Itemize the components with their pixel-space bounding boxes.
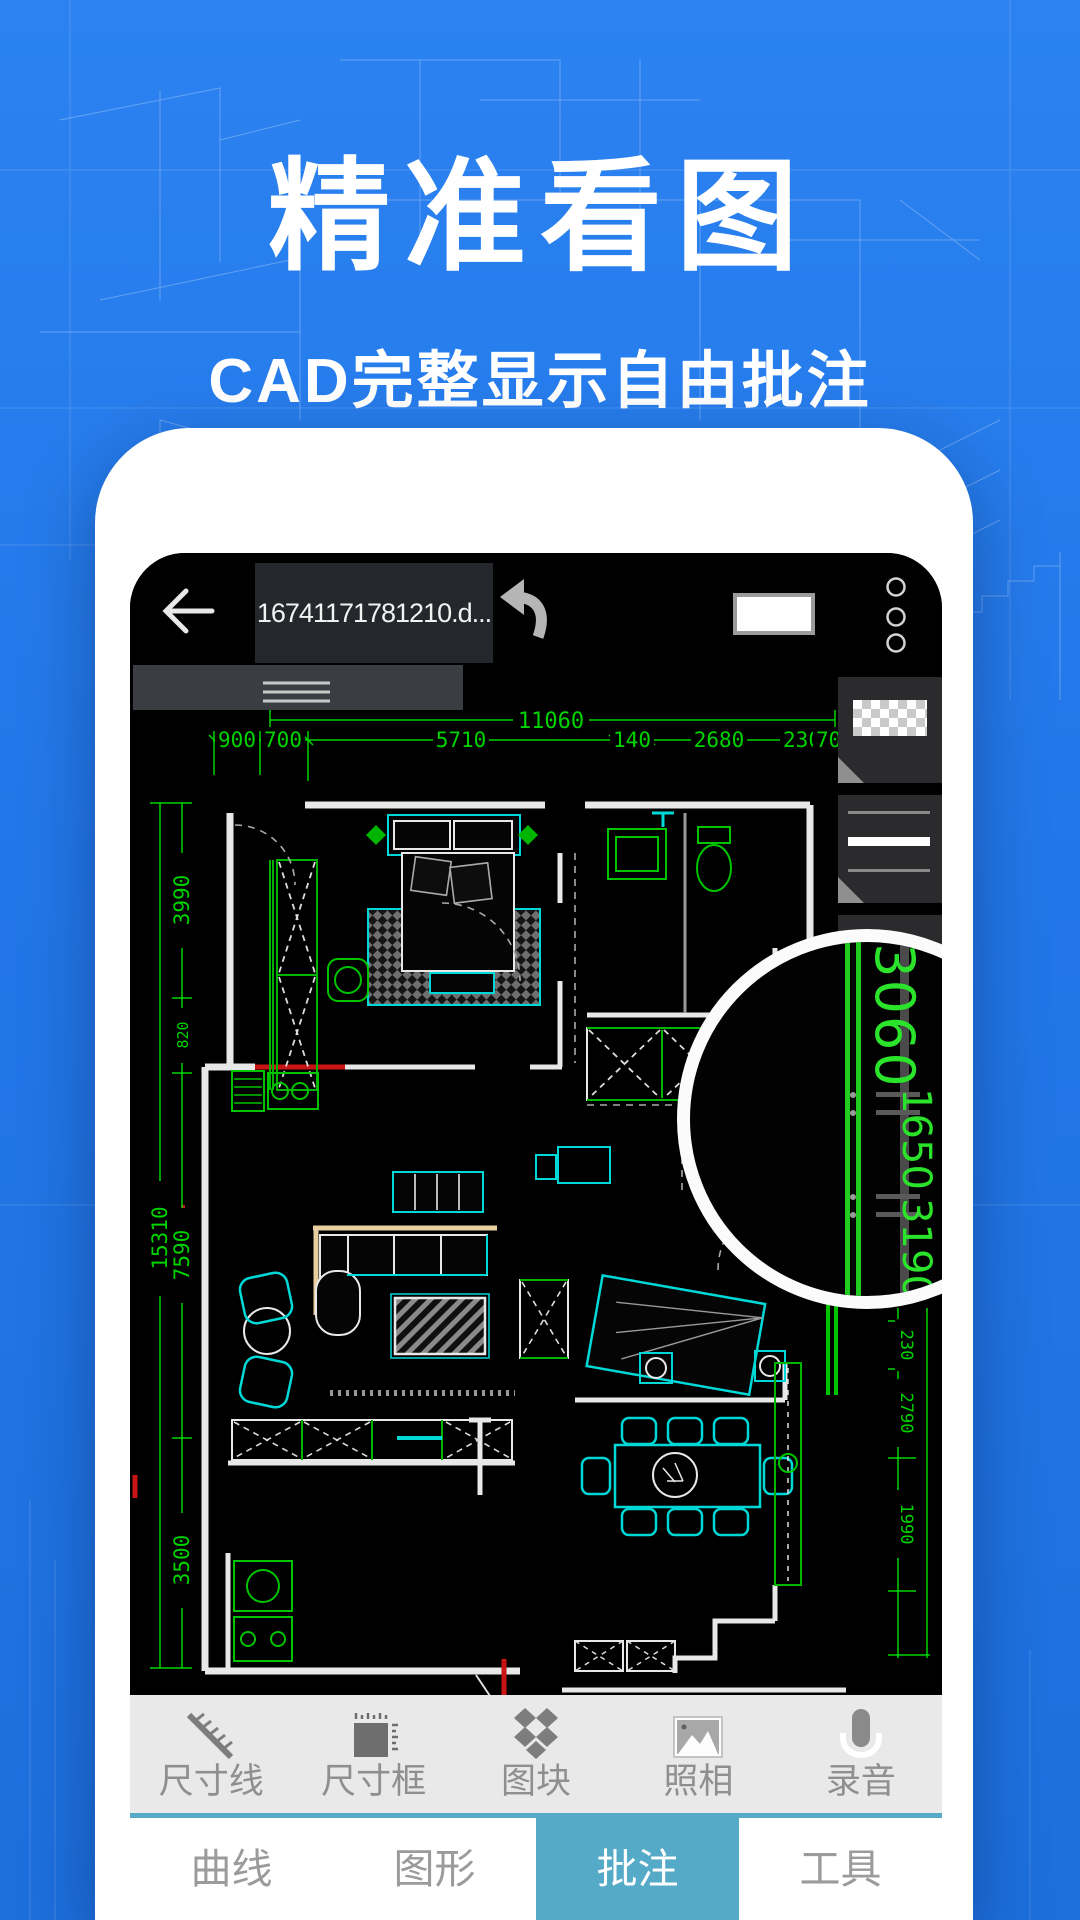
dim-label: 11060 (518, 709, 584, 734)
dim-dot (850, 1194, 856, 1200)
annotation-toolbar: 尺寸线 尺寸框 (130, 1695, 942, 1813)
fold-triangle-icon (838, 877, 864, 903)
toolbar-item-label: 尺寸线 (130, 1765, 292, 1799)
dim-label: 140 (613, 728, 651, 752)
dim-dot (850, 1110, 856, 1116)
dim-label: 700 (264, 728, 302, 752)
undo-icon[interactable] (498, 575, 554, 649)
camera-icon (666, 1705, 730, 1769)
dim-label: 2790 (896, 1393, 916, 1434)
magnifier-value: 3190 (894, 1189, 938, 1309)
filename-label[interactable]: 16741171781210.d... (255, 563, 493, 663)
toolbar-item-record[interactable]: 录音 (780, 1695, 942, 1813)
drawer-handle[interactable] (133, 663, 463, 710)
dim-label: 1990 (896, 1504, 916, 1545)
bottom-tab-bar: 曲线 图形 批注 工具 (130, 1813, 942, 1920)
magnifier-value: 3060 (864, 941, 924, 1091)
toolbar-item-label: 图块 (455, 1765, 617, 1799)
thin-line-option[interactable] (848, 811, 930, 814)
toolbar-item-label: 尺寸框 (292, 1765, 454, 1799)
dim-label: 5710 (436, 728, 487, 752)
dimension-line-icon (179, 1705, 243, 1769)
magnifier-value: 1650 (894, 1079, 938, 1199)
dim-label: 2680 (694, 728, 745, 752)
dim-label: 820 (174, 1021, 192, 1048)
tab-tools[interactable]: 工具 (739, 1818, 942, 1920)
lineweight-panel-section[interactable] (838, 795, 942, 903)
toolbar-item-label: 录音 (780, 1765, 942, 1799)
dim-label: 7590 (170, 1230, 194, 1281)
dim-label: 3500 (170, 1535, 194, 1586)
tab-graphics[interactable]: 图形 (333, 1818, 536, 1920)
toolbar-item-dimension-box[interactable]: 尺寸框 (292, 1695, 454, 1813)
toolbar-item-camera[interactable]: 照相 (617, 1695, 779, 1813)
thick-line-option[interactable] (848, 837, 930, 846)
dim-label: 15310 (148, 1206, 172, 1269)
tab-curve[interactable]: 曲线 (130, 1818, 333, 1920)
magnified-wall-line (856, 942, 861, 1296)
menu-dots-icon[interactable] (880, 575, 920, 659)
record-icon (829, 1705, 893, 1769)
promo-page: 精准看图 CAD完整显示自由批注 (0, 0, 1080, 1920)
dim-dot (850, 1092, 856, 1098)
back-icon[interactable] (158, 585, 218, 637)
screenshot-frame-button[interactable] (733, 593, 815, 635)
page-subtitle: CAD完整显示自由批注 (0, 330, 1080, 420)
dim-label: 3990 (170, 875, 194, 926)
block-icon (504, 1705, 568, 1769)
transparent-swatch[interactable] (853, 700, 927, 736)
app-top-bar: 16741171781210.d... (130, 553, 942, 665)
dim-dot (850, 1212, 856, 1218)
dim-label: 230 (896, 1330, 916, 1361)
color-panel-section[interactable] (838, 677, 942, 783)
dimension-box-icon (342, 1705, 406, 1769)
tab-annotation[interactable]: 批注 (536, 1818, 739, 1920)
thin-line-option[interactable] (848, 869, 930, 872)
phone-screen: 11060 900 700 5710 140 2680 230 (130, 553, 942, 1920)
page-title: 精准看图 (0, 118, 1080, 295)
magnified-wall-line (845, 942, 850, 1296)
toolbar-item-block[interactable]: 图块 (455, 1695, 617, 1813)
dim-label: 900 (218, 728, 256, 752)
toolbar-item-label: 照相 (617, 1765, 779, 1799)
phone-mockup: 11060 900 700 5710 140 2680 230 (95, 428, 973, 1920)
fold-triangle-icon (838, 757, 864, 783)
toolbar-item-dimension-line[interactable]: 尺寸线 (130, 1695, 292, 1813)
